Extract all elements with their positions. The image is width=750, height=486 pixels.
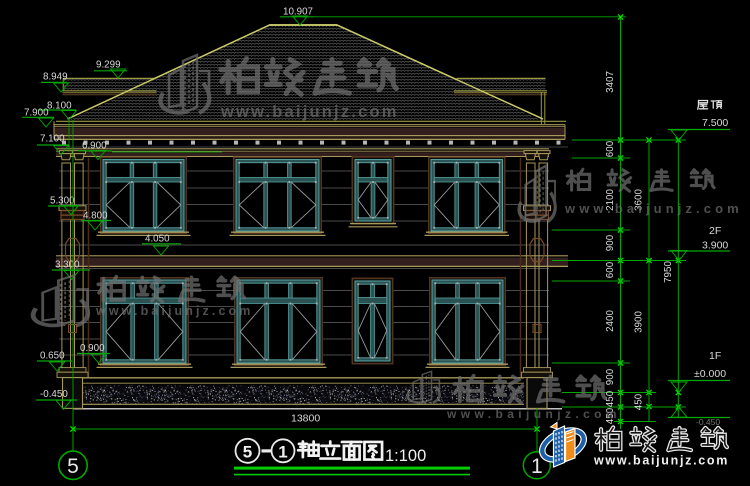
- svg-text:www.baijunjz.com: www.baijunjz.com: [593, 454, 729, 468]
- svg-text:7950: 7950: [663, 261, 674, 283]
- svg-text:13800: 13800: [291, 413, 320, 425]
- svg-text:1: 1: [531, 455, 543, 478]
- svg-text:4.800: 4.800: [83, 211, 108, 222]
- svg-text:2F: 2F: [709, 225, 721, 237]
- svg-text:7.100: 7.100: [40, 134, 65, 145]
- svg-text:600: 600: [605, 140, 616, 157]
- svg-text:4.050: 4.050: [145, 233, 170, 244]
- svg-text:3.900: 3.900: [702, 240, 728, 252]
- svg-text:3407: 3407: [605, 71, 616, 93]
- svg-text:450: 450: [634, 393, 645, 410]
- svg-text:600: 600: [605, 261, 616, 278]
- svg-text:1: 1: [278, 443, 287, 462]
- svg-text:5.300: 5.300: [50, 196, 75, 207]
- svg-text:1:100: 1:100: [385, 447, 426, 465]
- svg-text:5: 5: [243, 443, 252, 462]
- svg-text:-0.450: -0.450: [696, 417, 720, 427]
- svg-text:-0.450: -0.450: [40, 389, 68, 400]
- svg-text:2400: 2400: [605, 310, 616, 332]
- svg-text:±0.000: ±0.000: [694, 368, 726, 380]
- svg-text:1F: 1F: [709, 350, 721, 362]
- svg-text:7.500: 7.500: [702, 117, 728, 129]
- svg-text:0.650: 0.650: [40, 351, 65, 362]
- svg-text:www.baijunjz.com: www.baijunjz.com: [564, 201, 743, 216]
- svg-text:5: 5: [67, 455, 79, 478]
- svg-text:3900: 3900: [634, 311, 645, 333]
- svg-text:900: 900: [605, 368, 616, 385]
- svg-text:www.baijunjz.com: www.baijunjz.com: [95, 304, 253, 318]
- svg-text:www.baijunjz.com: www.baijunjz.com: [446, 407, 621, 421]
- svg-text:3.300: 3.300: [55, 260, 80, 271]
- svg-text:8.949: 8.949: [43, 72, 68, 83]
- svg-text:900: 900: [605, 234, 616, 251]
- svg-text:6.900: 6.900: [82, 141, 107, 152]
- svg-text:0.900: 0.900: [80, 343, 105, 354]
- svg-text:www.baijunjz.com: www.baijunjz.com: [220, 103, 399, 121]
